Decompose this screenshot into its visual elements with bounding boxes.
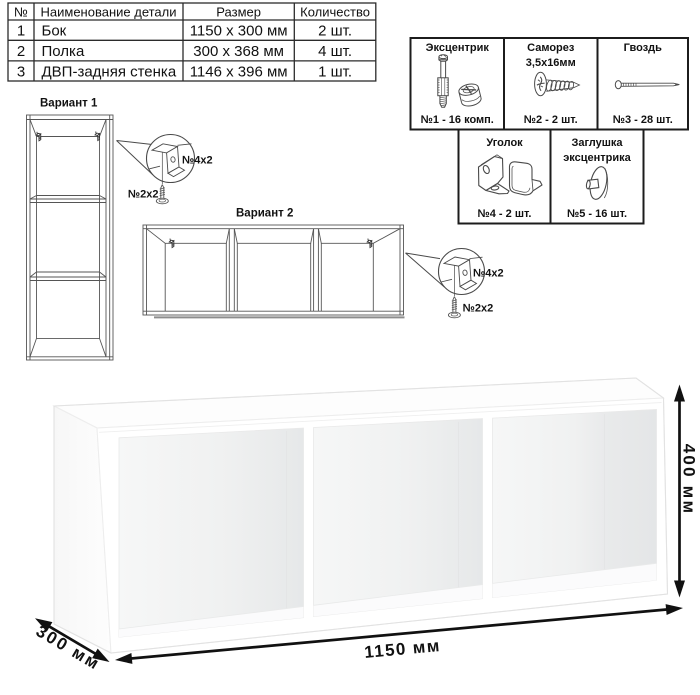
- svg-text:№5 - 16 шт.: №5 - 16 шт.: [567, 208, 627, 220]
- svg-text:№: №: [14, 4, 28, 19]
- svg-text:1: 1: [17, 23, 25, 40]
- svg-text:Количество: Количество: [300, 4, 370, 19]
- svg-text:№4х2: №4х2: [182, 155, 213, 167]
- svg-text:№2х2: №2х2: [463, 303, 494, 315]
- svg-text:Бок: Бок: [42, 23, 67, 40]
- svg-text:1146 x 396 мм: 1146 x 396 мм: [190, 63, 288, 80]
- svg-text:ДВП-задняя стенка: ДВП-задняя стенка: [42, 63, 177, 80]
- svg-text:№4х2: №4х2: [473, 268, 504, 280]
- svg-text:Наименование детали: Наименование детали: [41, 4, 177, 19]
- svg-text:№2 - 2 шт.: №2 - 2 шт.: [524, 114, 578, 126]
- svg-text:4 шт.: 4 шт.: [318, 43, 352, 60]
- svg-text:Уголок: Уголок: [486, 137, 523, 149]
- svg-text:эксцентрика: эксцентрика: [563, 152, 631, 164]
- svg-text:Гвоздь: Гвоздь: [624, 42, 663, 54]
- svg-text:Размер: Размер: [216, 4, 261, 19]
- svg-text:1150 x 300 мм: 1150 x 300 мм: [190, 23, 288, 40]
- svg-text:3: 3: [17, 63, 25, 80]
- svg-text:Саморез: Саморез: [527, 42, 575, 54]
- svg-text:1150 мм: 1150 мм: [364, 636, 442, 662]
- svg-text:Вариант 1: Вариант 1: [40, 98, 98, 110]
- svg-text:№2х2: №2х2: [128, 189, 159, 201]
- svg-text:Полка: Полка: [42, 43, 85, 60]
- svg-text:300 x 368 мм: 300 x 368 мм: [193, 43, 284, 60]
- svg-text:№4 - 2 шт.: №4 - 2 шт.: [478, 208, 532, 220]
- svg-text:3,5х16мм: 3,5х16мм: [526, 57, 576, 69]
- svg-text:400 мм: 400 мм: [680, 444, 699, 515]
- svg-text:2: 2: [17, 43, 25, 60]
- svg-text:Заглушка: Заглушка: [571, 137, 623, 149]
- svg-text:Вариант 2: Вариант 2: [236, 208, 293, 220]
- svg-text:2 шт.: 2 шт.: [318, 23, 352, 40]
- svg-text:Эксцентрик: Эксцентрик: [426, 42, 490, 54]
- svg-text:№1 - 16 комп.: №1 - 16 комп.: [421, 114, 494, 126]
- svg-text:№3 - 28 шт.: №3 - 28 шт.: [613, 114, 673, 126]
- svg-text:1 шт.: 1 шт.: [318, 63, 352, 80]
